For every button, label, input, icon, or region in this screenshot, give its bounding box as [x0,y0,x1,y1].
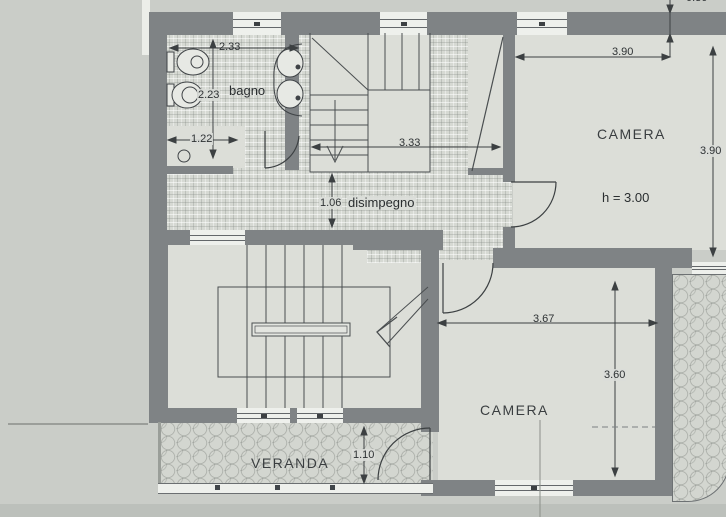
floor-stairwell [166,245,421,410]
window-top-stairs [380,12,427,35]
wall-left [149,12,167,245]
glazing-veranda-front [158,483,433,494]
dim-veranda-depth: 1.10 [352,449,375,461]
wall-bagno-right [285,33,299,170]
wall-stairwell-left [149,243,168,423]
floor-balcony-hex [672,274,726,502]
window-camera-bottom [495,480,573,496]
floor-hall-sloped-area [468,33,503,168]
window-tick [401,22,407,26]
room-label-bagno: bagno [229,84,265,98]
window-top-bagno [233,12,281,35]
dim-camera-bottom-depth: 3.60 [603,369,626,381]
room-label-veranda: VERANDA [251,456,329,471]
floor-veranda-hex [160,422,433,483]
dim-camera-top-depth: 3.90 [699,145,722,157]
window-top-camera [517,12,567,35]
wall-stairwell-bottom-c [343,408,439,423]
wall-stairwell-right [421,250,439,423]
floor-stair-upper-block [310,33,430,172]
glazing-tick [215,485,220,490]
room-label-disimpegno: disimpegno [347,196,416,210]
photo-bottom-shade [0,504,726,517]
dim-camera-top-width: 3.90 [612,46,633,58]
wall-stairwell-bottom-b [290,408,297,423]
wall-veranda-left-thin [158,422,161,492]
wall-stairwell-bottom-a [149,408,237,423]
wall-stairwell-top-c [353,230,443,250]
room-label-camera-top: CAMERA [597,127,666,142]
window-tick [531,486,537,490]
window-tick [254,22,260,26]
dim-stair-hall-width: 3.33 [399,137,420,149]
glazing-tick [330,485,335,490]
wall-veranda-door-stub [421,422,439,432]
wall-bagno-bottom [167,166,233,174]
wall-camera-bottom-b [573,480,672,496]
floor-plan-photo: 2.33 2.23 bagno 1.22 3.33 1.06 disimpegn… [0,0,726,517]
dim-disimpegno-width: 1.06 [319,197,342,209]
dim-bagno-depth: 2.23 [197,89,220,101]
glazing-tick [275,485,280,490]
wall-camera-bottom-right [655,268,672,482]
label-camera-top-height: h = 3.00 [602,191,649,205]
window-tick [317,414,323,418]
wall-camera-divider [493,248,692,268]
wall-camera-top-left-lower [503,227,515,250]
opening-stairwell-veranda-right [297,408,343,423]
dim-camera-bottom-width: 3.67 [533,313,554,325]
window-tick [261,414,267,418]
opening-disimpegno-stairwell [190,230,245,245]
room-label-camera-bottom: CAMERA [480,403,549,418]
dim-bagno-niche: 1.22 [190,133,213,145]
wall-stairwell-top-b [245,230,353,245]
opening-stairwell-veranda-left [237,408,290,423]
window-tick [539,22,545,26]
dim-wall-thickness-partial: 0.30 [686,0,707,4]
wall-camera-top-left-upper [503,33,515,182]
dim-bagno-width: 2.33 [219,41,240,53]
window-balcony [692,262,726,274]
